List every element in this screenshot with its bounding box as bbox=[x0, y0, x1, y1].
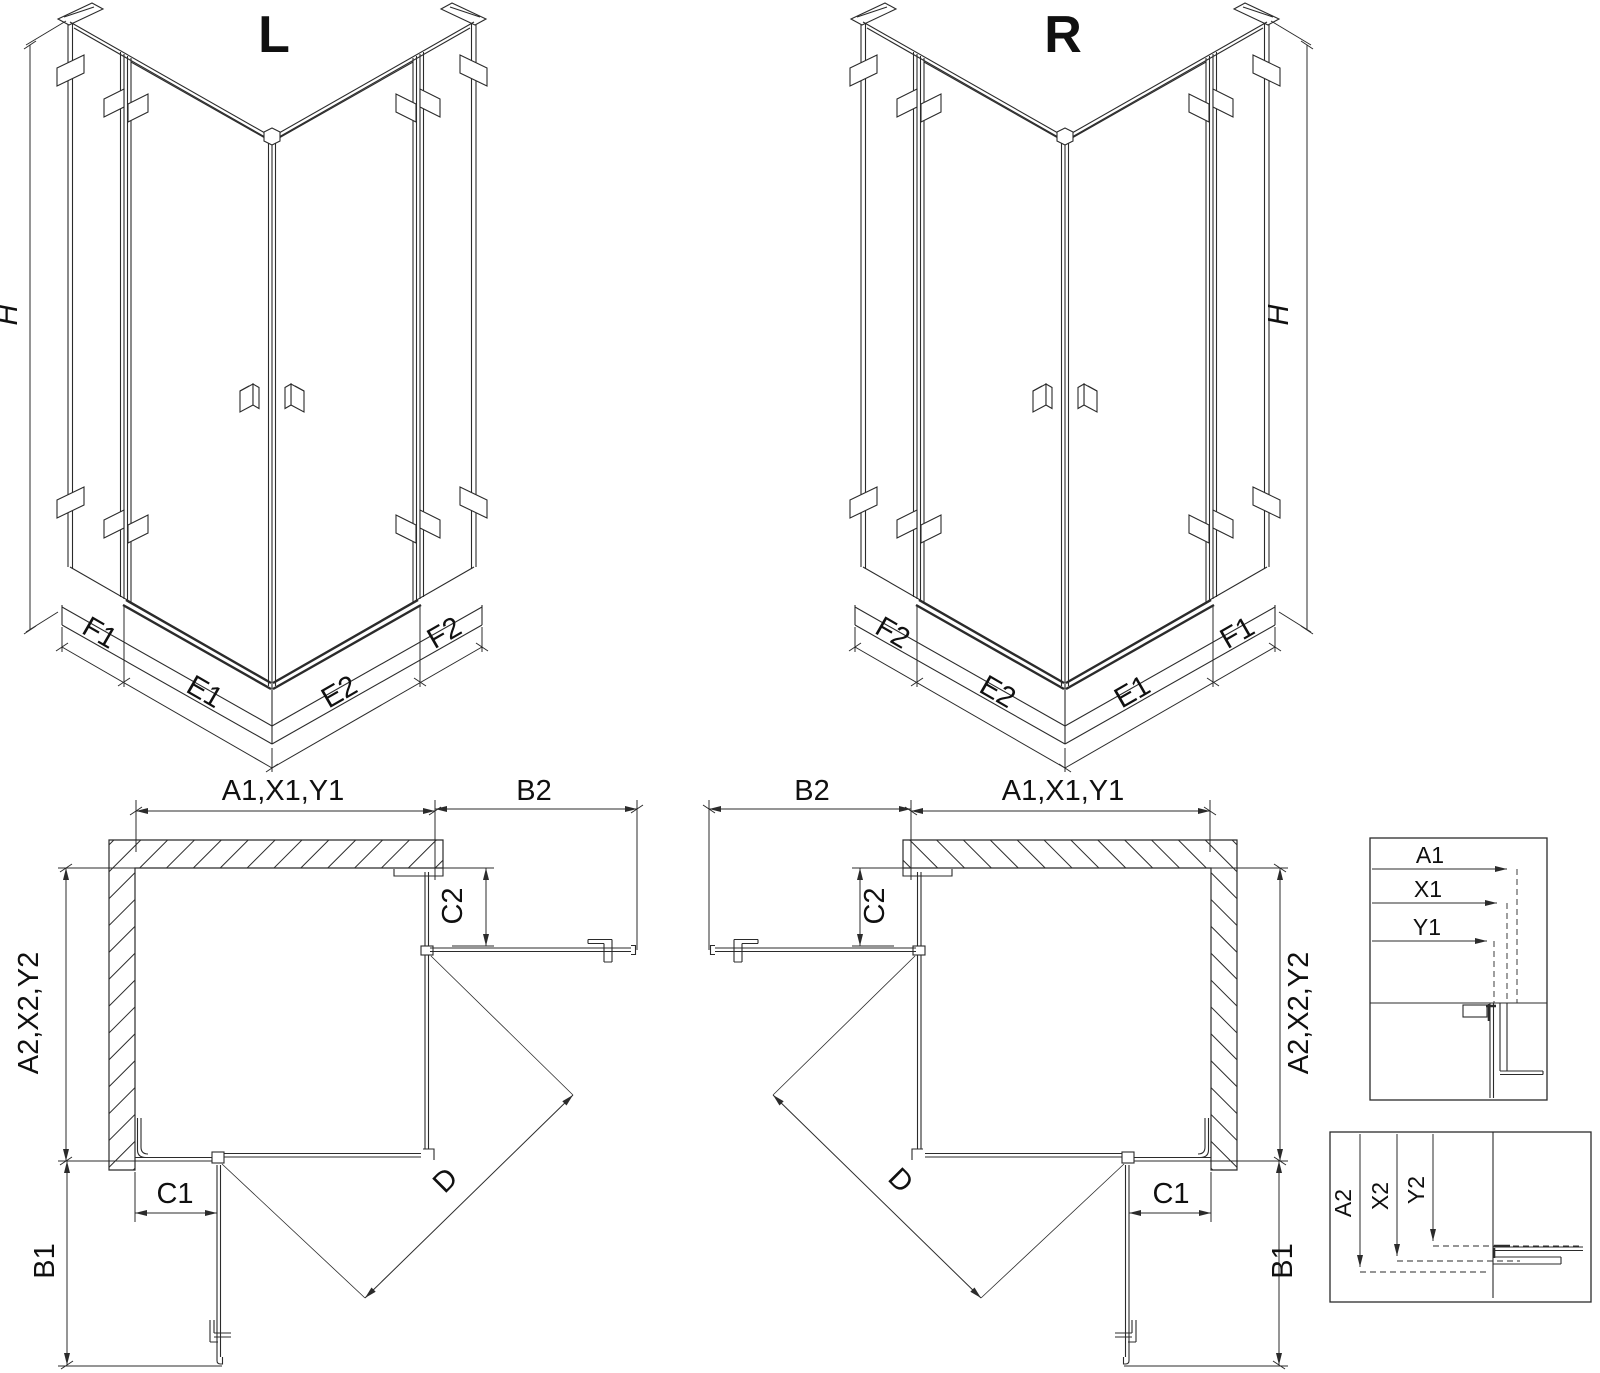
iso-left-dim-f2: F2 bbox=[422, 611, 467, 656]
iso-right-dim-h: H bbox=[1263, 304, 1295, 325]
plan-view-left-geometry bbox=[58, 800, 643, 1369]
iso-left-title: L bbox=[258, 6, 290, 64]
iso-right-title: R bbox=[1044, 6, 1082, 64]
plan-left-dim-a1: A1,X1,Y1 bbox=[222, 775, 345, 807]
iso-right-dim-f1: F1 bbox=[1215, 611, 1260, 656]
plan-left-dim-b1: B1 bbox=[29, 1243, 61, 1278]
plan-right-dim-c2: C2 bbox=[859, 887, 891, 924]
plan-right-dim-b1: B1 bbox=[1267, 1243, 1299, 1278]
plan-right-dim-d: D bbox=[882, 1162, 919, 1199]
detail-box-bottom bbox=[1330, 1132, 1591, 1302]
plan-left-dim-b2: B2 bbox=[516, 775, 551, 807]
detail-bottom-label-a2: A2 bbox=[1330, 1189, 1356, 1217]
detail-top-label-a1: A1 bbox=[1416, 842, 1444, 868]
plan-left-dim-c2: C2 bbox=[437, 887, 469, 924]
plan-right-dim-a2: A2,X2,Y2 bbox=[1283, 952, 1315, 1075]
plan-right-dim-b2: B2 bbox=[794, 775, 829, 807]
detail-bottom-label-y2: Y2 bbox=[1403, 1176, 1429, 1204]
iso-left-dim-e1: E1 bbox=[181, 669, 228, 714]
plan-left-dim-d: D bbox=[427, 1162, 464, 1199]
iso-left-dim-h: H bbox=[0, 304, 24, 325]
iso-left-dim-f1: F1 bbox=[77, 611, 122, 656]
iso-right-dim-e2: E2 bbox=[974, 669, 1021, 714]
plan-left-dim-c1: C1 bbox=[156, 1178, 193, 1210]
plan-right-dim-c1: C1 bbox=[1152, 1178, 1189, 1210]
plan-right-dim-a1: A1,X1,Y1 bbox=[1002, 775, 1125, 807]
page: L H F1 E1 E2 F2 R H F2 E2 E1 F1 A1,X1,Y1… bbox=[0, 0, 1600, 1373]
plan-left-dim-a2: A2,X2,Y2 bbox=[13, 952, 45, 1075]
detail-top-label-y1: Y1 bbox=[1413, 914, 1441, 940]
iso-right-dim-e1: E1 bbox=[1109, 669, 1156, 714]
iso-left-dim-e2: E2 bbox=[316, 669, 363, 714]
iso-view-right-geometry bbox=[849, 3, 1313, 772]
detail-top-label-x1: X1 bbox=[1414, 876, 1442, 902]
plan-view-right-geometry bbox=[703, 800, 1288, 1369]
iso-view-left-geometry bbox=[24, 3, 488, 772]
detail-bottom-label-x2: X2 bbox=[1367, 1182, 1393, 1210]
iso-right-dim-f2: F2 bbox=[870, 611, 915, 656]
detail-box-top bbox=[1370, 838, 1547, 1100]
shower-enclosure-technical-drawing: L H F1 E1 E2 F2 R H F2 E2 E1 F1 A1,X1,Y1… bbox=[0, 0, 1600, 1373]
